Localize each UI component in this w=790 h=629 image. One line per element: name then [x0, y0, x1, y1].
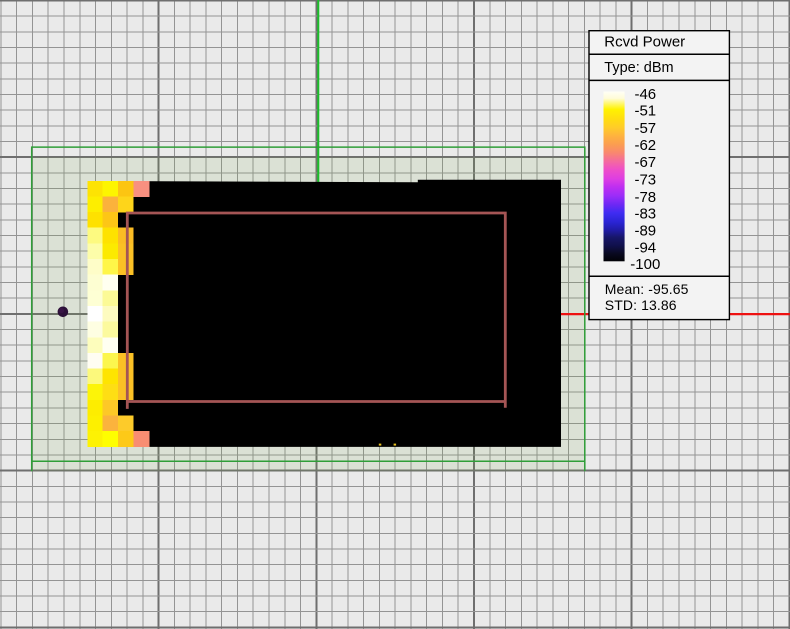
svg-text:-73: -73	[634, 171, 656, 188]
svg-text:Type: dBm: Type: dBm	[604, 60, 673, 76]
svg-text:-89: -89	[634, 223, 656, 240]
svg-text:Mean: -95.65: Mean: -95.65	[605, 281, 689, 297]
svg-text:-78: -78	[634, 189, 656, 206]
svg-text:-83: -83	[634, 205, 656, 222]
svg-text:STD: 13.86: STD: 13.86	[605, 297, 677, 313]
svg-text:-46: -46	[634, 86, 656, 103]
svg-text:Rcvd Power: Rcvd Power	[604, 34, 685, 51]
svg-text:-57: -57	[634, 120, 656, 137]
svg-text:-100: -100	[630, 256, 660, 273]
svg-text:-94: -94	[634, 240, 656, 257]
svg-text:-51: -51	[634, 103, 656, 120]
svg-text:-67: -67	[634, 154, 656, 171]
svg-text:-62: -62	[634, 137, 656, 154]
